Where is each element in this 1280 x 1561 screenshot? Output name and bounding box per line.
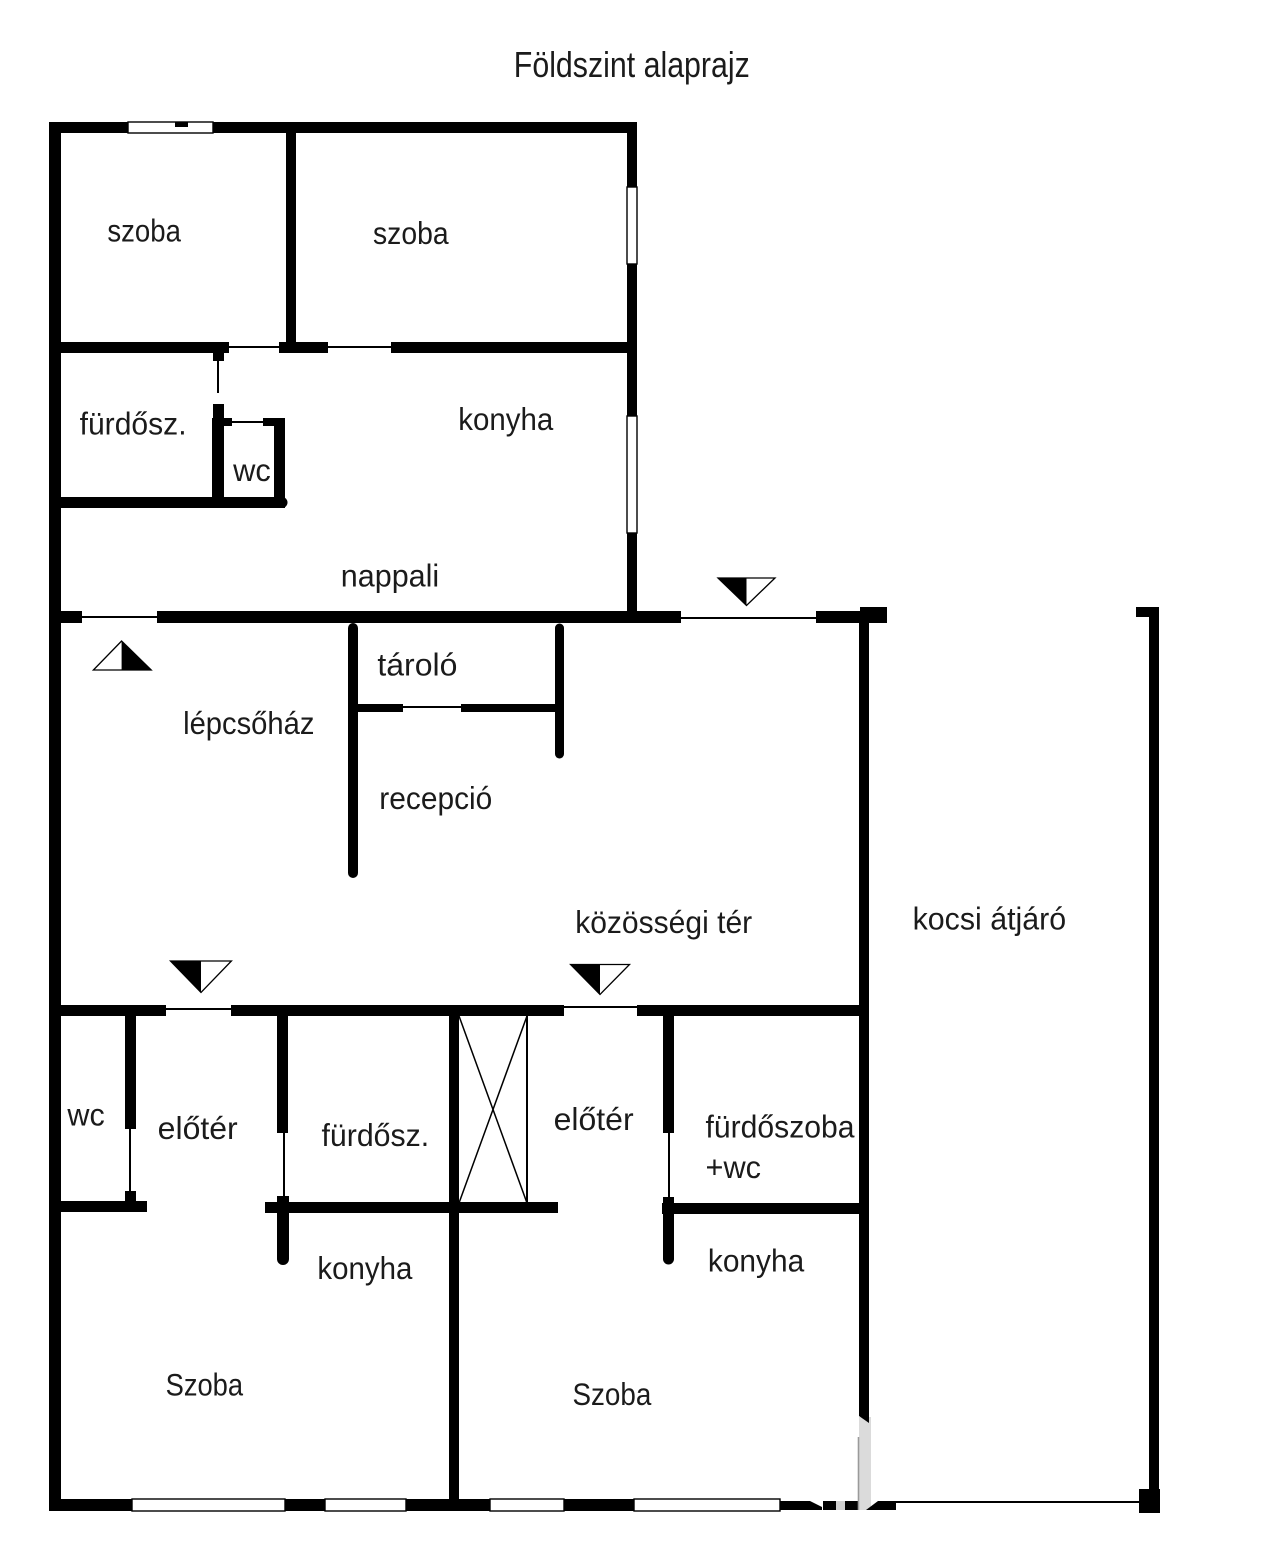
svg-text:fürdőszoba: fürdőszoba: [706, 1108, 855, 1144]
svg-text:+wc: +wc: [706, 1149, 762, 1185]
svg-text:recepció: recepció: [379, 780, 492, 816]
svg-text:előtér: előtér: [158, 1110, 238, 1146]
svg-text:szoba: szoba: [107, 212, 181, 248]
svg-text:Szoba: Szoba: [573, 1376, 652, 1412]
svg-text:kocsi átjáró: kocsi átjáró: [913, 901, 1067, 937]
svg-text:konyha: konyha: [317, 1250, 412, 1286]
svg-text:előtér: előtér: [554, 1101, 634, 1137]
svg-text:szoba: szoba: [373, 215, 449, 251]
svg-text:Szoba: Szoba: [166, 1367, 244, 1403]
svg-text:lépcsőház: lépcsőház: [183, 705, 314, 741]
svg-text:fürdősz.: fürdősz.: [80, 406, 187, 442]
svg-text:Földszint alaprajz: Földszint alaprajz: [514, 44, 750, 85]
svg-text:konyha: konyha: [458, 401, 553, 437]
svg-text:tároló: tároló: [377, 647, 457, 683]
svg-text:konyha: konyha: [708, 1243, 805, 1279]
svg-text:nappali: nappali: [341, 558, 439, 594]
svg-text:wc: wc: [232, 452, 271, 488]
svg-text:közösségi tér: közösségi tér: [575, 904, 752, 940]
svg-text:wc: wc: [66, 1096, 104, 1132]
svg-text:fürdősz.: fürdősz.: [322, 1117, 430, 1153]
